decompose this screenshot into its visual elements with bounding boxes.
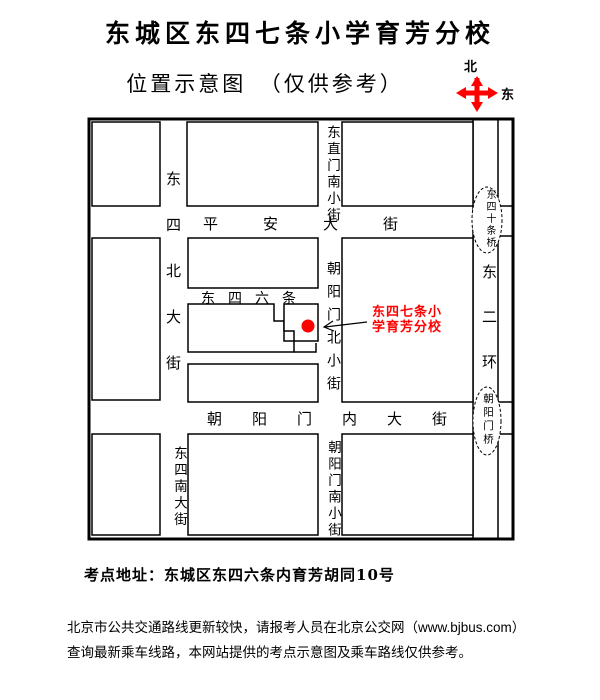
street-label-dong-er-huan: 东二环: [479, 264, 500, 399]
compass-icon: [456, 76, 498, 112]
city-block: [188, 434, 318, 535]
city-block: [92, 434, 160, 535]
school-annotation-label: 东四七条小学育芳分校: [372, 305, 444, 335]
street-label-dongsi-nan-dajie: 东四南大街: [169, 446, 189, 529]
location-map-page: 东城区东四七条小学育芳分校 位置示意图 （仅供参考）: [0, 0, 600, 700]
city-block: [188, 238, 318, 288]
street-label-chaoyangmennei-dajie: 朝阳门内大街: [207, 408, 477, 429]
street-label-dongzhimen-nan-xiaojie: 东直门南小街: [322, 125, 342, 224]
school-block-outline: [188, 304, 318, 352]
bridge-label-chaoyangmen-qiao: 朝阳门桥: [481, 393, 496, 447]
city-block: [342, 122, 473, 206]
city-block: [92, 238, 160, 400]
street-label-dongsi-bei-dajie: 东四北大街: [163, 171, 184, 401]
transit-note: 北京市公共交通路线更新较快，请报考人员在北京公交网（www.bjbus.com）…: [67, 615, 567, 665]
city-block: [188, 364, 318, 402]
city-block: [187, 122, 318, 206]
school-marker-dot: [302, 320, 315, 333]
transit-note-line-2: 查询最新乘车线路，本网站提供的考点示意图及乘车路线仅供参考。: [67, 640, 567, 665]
exam-site-address: 考点地址：东城区东四六条内育芳胡同10号: [84, 564, 395, 585]
street-label-dongsi-liutiao: 东四六条: [201, 288, 309, 308]
city-block: [342, 434, 473, 535]
compass-east-label: 东: [501, 84, 514, 103]
city-block: [92, 122, 160, 206]
bridge-label-dongsishitiao-qiao: 东四十条桥: [482, 189, 497, 249]
map-canvas: [0, 0, 600, 700]
street-label-chaoyangmen-bei-xiaojie: 朝阳门北小街: [323, 261, 343, 399]
compass-north-label: 北: [464, 56, 477, 75]
street-label-chaoyangmen-nan-xiaojie: 朝阳门南小街: [323, 440, 343, 539]
transit-note-line-1: 北京市公共交通路线更新较快，请报考人员在北京公交网（www.bjbus.com）: [67, 615, 567, 640]
